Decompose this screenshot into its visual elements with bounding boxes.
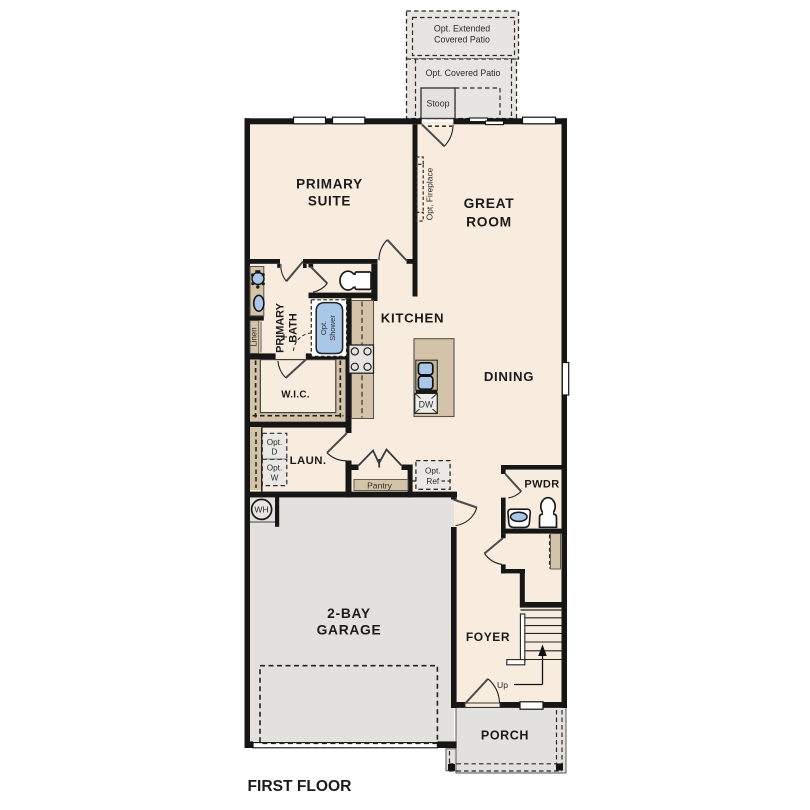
svg-text:Ref: Ref xyxy=(426,477,439,486)
svg-text:2-BAY: 2-BAY xyxy=(327,606,371,621)
svg-text:FIRST FLOOR: FIRST FLOOR xyxy=(248,778,352,795)
svg-text:Opt. Covered Patio: Opt. Covered Patio xyxy=(426,68,501,78)
svg-text:Opt.: Opt. xyxy=(267,438,282,447)
svg-text:PRIMARY: PRIMARY xyxy=(296,177,363,192)
svg-text:DW: DW xyxy=(419,400,434,410)
svg-text:Opt.: Opt. xyxy=(267,464,282,473)
svg-text:Pantry: Pantry xyxy=(367,481,393,491)
svg-text:GARAGE: GARAGE xyxy=(317,623,382,638)
svg-text:Opt. Fireplace: Opt. Fireplace xyxy=(425,167,435,220)
svg-text:DINING: DINING xyxy=(484,369,534,384)
svg-text:W.I.C.: W.I.C. xyxy=(281,390,309,401)
svg-text:ROOM: ROOM xyxy=(466,215,512,230)
svg-text:GREAT: GREAT xyxy=(464,196,515,211)
svg-text:Opt. Extended: Opt. Extended xyxy=(434,24,490,34)
svg-text:W: W xyxy=(271,474,279,483)
svg-text:D: D xyxy=(272,447,278,456)
svg-text:Opt.: Opt. xyxy=(425,467,440,476)
svg-text:WH: WH xyxy=(254,505,268,515)
svg-text:LAUN.: LAUN. xyxy=(290,455,327,467)
svg-text:PORCH: PORCH xyxy=(481,729,529,743)
svg-text:Covered Patio: Covered Patio xyxy=(434,35,490,45)
svg-text:PWDR: PWDR xyxy=(524,479,559,491)
svg-text:KITCHEN: KITCHEN xyxy=(381,311,445,326)
svg-text:FOYER: FOYER xyxy=(466,630,510,644)
svg-text:SUITE: SUITE xyxy=(308,194,351,209)
svg-text:Up: Up xyxy=(497,680,508,690)
svg-text:Stoop: Stoop xyxy=(427,99,450,109)
svg-text:Linen: Linen xyxy=(249,327,258,346)
